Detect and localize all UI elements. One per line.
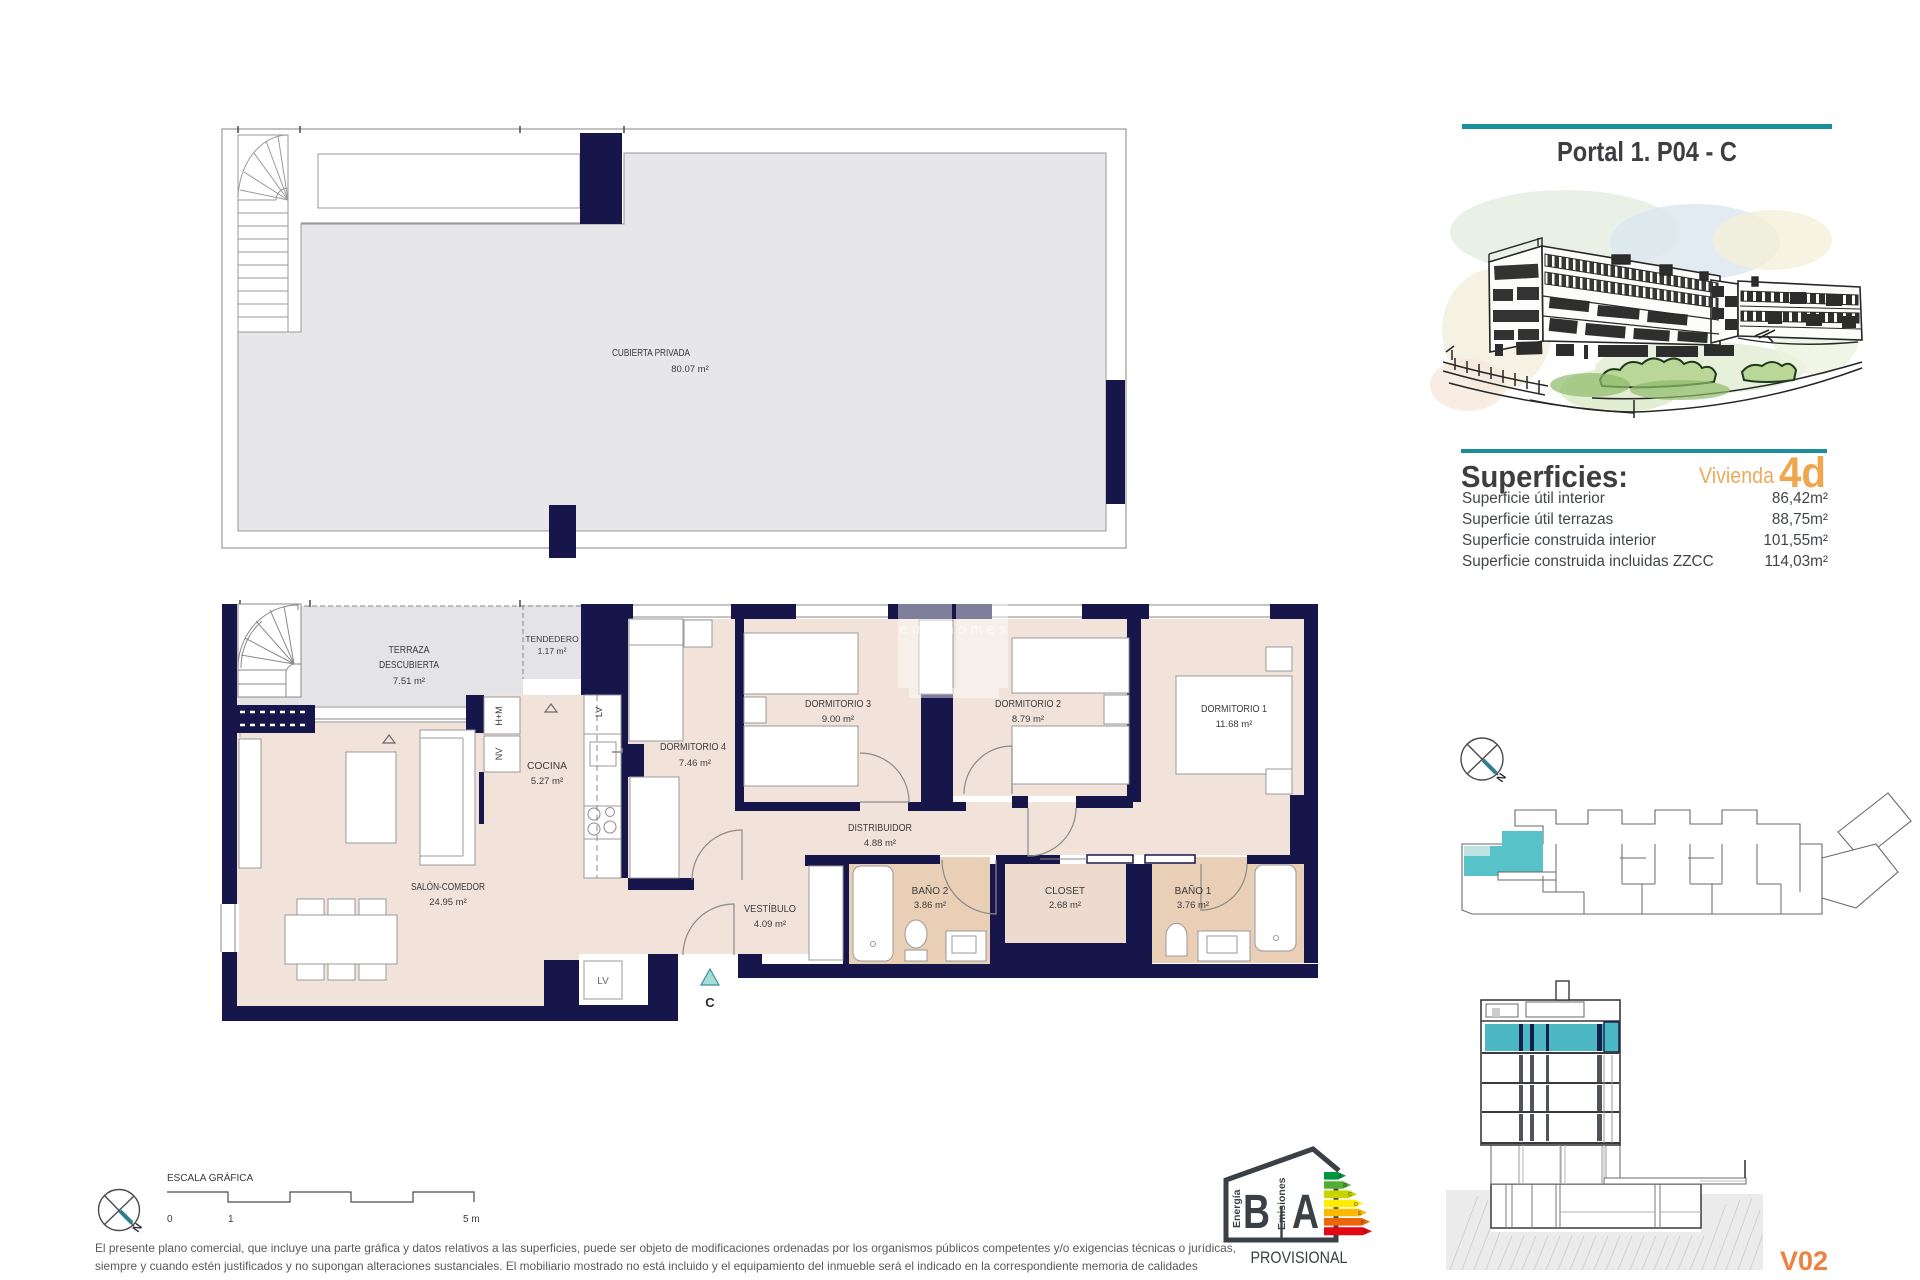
svg-text:7.51 m²: 7.51 m² [393, 676, 425, 687]
svg-text:Energía: Energía [1231, 1189, 1243, 1228]
svg-text:2.68 m²: 2.68 m² [1049, 900, 1081, 911]
svg-text:eurohomes: eurohomes [899, 621, 1010, 638]
svg-text:El presente plano comercial, q: El presente plano comercial, que incluye… [95, 1241, 1236, 1255]
svg-text:BAÑO 1: BAÑO 1 [1175, 884, 1212, 897]
svg-text:Superficie construida interior: Superficie construida interior [1462, 532, 1656, 549]
svg-text:Superficie útil terrazas: Superficie útil terrazas [1462, 511, 1614, 528]
svg-text:Portal 1. P04 - C: Portal 1. P04 - C [1557, 136, 1737, 167]
svg-text:D: D [1354, 1202, 1358, 1208]
svg-text:PROVISIONAL: PROVISIONAL [1251, 1249, 1348, 1267]
svg-text:Vivienda: Vivienda [1699, 463, 1775, 488]
svg-text:CLOSET: CLOSET [1045, 886, 1085, 897]
svg-text:LV: LV [597, 976, 609, 987]
svg-text:DISTRIBUIDOR: DISTRIBUIDOR [848, 823, 912, 834]
svg-text:Superficie construida incluida: Superficie construida incluidas ZZCC [1462, 553, 1714, 570]
svg-text:3.86 m²: 3.86 m² [914, 900, 946, 911]
svg-text:BAÑO 2: BAÑO 2 [912, 884, 949, 897]
svg-text:COCINA: COCINA [527, 761, 567, 772]
svg-text:5 m: 5 m [463, 1214, 480, 1225]
svg-text:DORMITORIO 2: DORMITORIO 2 [995, 699, 1061, 710]
svg-text:NV: NV [494, 748, 504, 761]
svg-text:8.79 m²: 8.79 m² [1012, 714, 1044, 725]
svg-text:Emisiones: Emisiones [1276, 1177, 1288, 1230]
svg-text:C: C [1348, 1192, 1352, 1198]
svg-text:LV: LV [594, 707, 604, 717]
svg-text:B: B [1343, 1183, 1347, 1189]
svg-text:88,75m²: 88,75m² [1772, 511, 1828, 528]
svg-text:siempre y cuando estén justifi: siempre y cuando estén justificados y no… [95, 1259, 1198, 1273]
svg-text:9.00 m²: 9.00 m² [822, 714, 854, 725]
svg-text:80.07 m²: 80.07 m² [671, 364, 709, 375]
svg-text:H+M: H+M [494, 706, 504, 725]
svg-text:1: 1 [228, 1214, 234, 1225]
svg-text:5.27 m²: 5.27 m² [531, 776, 563, 787]
svg-text:0: 0 [167, 1214, 173, 1225]
svg-text:C: C [705, 995, 715, 1010]
svg-text:DORMITORIO 4: DORMITORIO 4 [660, 742, 726, 753]
svg-text:V02: V02 [1780, 1246, 1828, 1276]
svg-text:G: G [1363, 1229, 1367, 1235]
svg-text:7.46 m²: 7.46 m² [679, 758, 711, 769]
svg-text:A: A [1292, 1186, 1319, 1239]
svg-text:B: B [1243, 1186, 1270, 1239]
svg-text:DESCUBIERTA: DESCUBIERTA [379, 660, 439, 671]
svg-text:TERRAZA: TERRAZA [389, 645, 430, 656]
svg-text:4.88 m²: 4.88 m² [864, 838, 896, 849]
svg-text:ESCALA GRÁFICA: ESCALA GRÁFICA [167, 1171, 253, 1184]
svg-text:SALÓN-COMEDOR: SALÓN-COMEDOR [411, 880, 485, 893]
svg-text:3.76 m²: 3.76 m² [1177, 900, 1209, 911]
svg-text:24.95 m²: 24.95 m² [429, 897, 467, 908]
svg-text:4.09 m²: 4.09 m² [754, 919, 786, 930]
svg-text:E: E [1358, 1211, 1362, 1217]
svg-text:1.17 m²: 1.17 m² [538, 646, 567, 656]
svg-text:114,03m²: 114,03m² [1765, 553, 1829, 570]
svg-text:CUBIERTA PRIVADA: CUBIERTA PRIVADA [612, 348, 690, 359]
svg-text:Superficies:: Superficies: [1461, 459, 1628, 494]
svg-text:86,42m²: 86,42m² [1772, 490, 1828, 507]
svg-text:Superficie útil interior: Superficie útil interior [1462, 490, 1605, 507]
svg-text:DORMITORIO 1: DORMITORIO 1 [1201, 704, 1267, 715]
svg-text:101,55m²: 101,55m² [1763, 532, 1828, 549]
svg-text:DORMITORIO 3: DORMITORIO 3 [805, 699, 871, 710]
svg-text:11.68 m²: 11.68 m² [1216, 719, 1253, 730]
svg-text:A: A [1338, 1174, 1342, 1180]
svg-text:TENDEDERO: TENDEDERO [525, 634, 579, 644]
svg-text:VESTÍBULO: VESTÍBULO [744, 902, 796, 915]
